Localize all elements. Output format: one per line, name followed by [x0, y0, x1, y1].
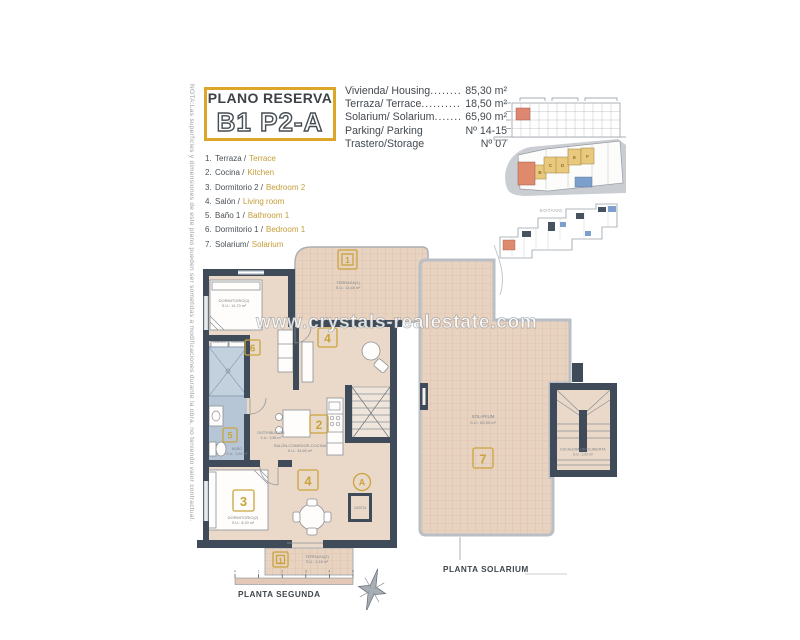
highlighted-unit-siteplan [518, 162, 535, 185]
info-row: Parking/ Parking Nº 14-15 [345, 125, 507, 138]
legend-es: Cocina / [215, 168, 244, 177]
living-area: S.U.: 34,60 m² [288, 449, 313, 453]
info-label: Trastero/Storage [345, 138, 424, 151]
info-label: Parking/ Parking [345, 125, 423, 138]
badge-kitchen: 2 [316, 418, 323, 432]
site-unit-letter: E [573, 155, 576, 160]
legend-item: 2.Cocina /Kitchen [205, 166, 305, 180]
legend-item: 1.Terraza /Terrace [205, 152, 305, 166]
terrace-bottom-area: S.U.: 4,16 m² [306, 560, 329, 564]
main-floorplans: 1 6 5 3 4 2 4 1 A TERRAZA [190, 238, 640, 610]
scale-tick: 1 [258, 570, 260, 574]
plan-solarium-label: PLANTA SOLARIUM [443, 565, 529, 574]
building-elevation-drawing [494, 98, 626, 140]
badge-bed1: 6 [250, 344, 256, 355]
legend-number: 1. [205, 152, 215, 166]
sotano-label: SOTANO [540, 208, 563, 214]
scale-tick: 0 [234, 570, 236, 574]
tv-unit [302, 342, 313, 382]
sofa [278, 330, 293, 372]
bath-name: BAÑO [232, 446, 243, 451]
kitchen-counter [327, 398, 343, 455]
highlighted-unit-elevation [516, 108, 530, 120]
legend-item: 6.Dormitorio 1 /Bedroom 1 [205, 223, 305, 237]
outdoor-stairwell: ESCALERA DESCUBIERTA S.U.: 1,02 m² [550, 383, 617, 477]
legend-es: Dormitorio 2 / [215, 183, 263, 192]
staircase [352, 387, 390, 439]
solarium-wall-block [572, 363, 583, 382]
legend-en: Living room [243, 197, 284, 206]
info-row: Vivienda/ Housing ......................… [345, 85, 507, 98]
areas-info-block: Vivienda/ Housing ......................… [345, 85, 507, 151]
section-marker-a: A [359, 478, 366, 488]
floorplan-sheet: NOTA:Las superficies y dimensiones de es… [0, 0, 800, 640]
info-row: Solarium/ Solarium .....................… [345, 111, 507, 124]
legend-number: 4. [205, 195, 215, 209]
bed2-area: S.U.: 8,20 m² [232, 521, 255, 525]
dot-leader: .............................. [430, 85, 461, 98]
scale-tick: 4 [328, 570, 330, 574]
stair-area: S.U.: 1,02 m² [573, 453, 594, 457]
plan-segunda-label: PLANTA SEGUNDA [238, 590, 321, 599]
bed1-area: S.U.: 14,70 m² [222, 304, 247, 308]
terrace-top-area: S.U.: 14,48 m² [336, 286, 361, 290]
legend-number: 3. [205, 181, 215, 195]
site-plan-mini: B C D E F [505, 139, 626, 196]
hall-name: DISTRIBUIDOR [257, 431, 284, 435]
site-unit-letter: F [586, 154, 589, 159]
solarium-room-name: SOLARIUM [472, 414, 495, 419]
legend-es: Salón / [215, 197, 240, 206]
scale-tick: 5 [352, 570, 354, 574]
solarium-access-door [420, 383, 428, 410]
stair-name: ESCALERA DESCUBIERTA [560, 448, 606, 452]
legend-es: Baño 1 / [215, 211, 245, 220]
legend-item: 4.Salón /Living room [205, 195, 305, 209]
info-row: Trastero/Storage Nº 07 [345, 138, 507, 151]
info-label: Vivienda/ Housing [345, 85, 430, 98]
info-row: Terraza/ Terrace .......................… [345, 98, 507, 111]
badge-bed2: 3 [240, 494, 247, 509]
legend-en: Bedroom 1 [266, 225, 305, 234]
watermark: www.crystals-realestate.com [256, 312, 538, 334]
info-label: Terraza/ Terrace [345, 98, 421, 111]
living-name: SALÓN-COMEDOR-COCINA [274, 443, 327, 448]
legend-en: Terrace [249, 154, 276, 163]
legend-en: Bathroom 1 [248, 211, 289, 220]
plan-title: PLANO RESERVA [208, 90, 332, 106]
legend-item: 3.Dormitorio 2 /Bedroom 2 [205, 181, 305, 195]
legend-es: Dormitorio 1 / [215, 225, 263, 234]
hall-area: S.U.: 3,58 m² [260, 436, 282, 440]
scale-tick: 2 [281, 570, 283, 574]
legend-item: 5.Baño 1 /Bathroom 1 [205, 209, 305, 223]
bed2-name: DORMITORIO(2) [228, 515, 259, 520]
info-label: Solarium/ Solarium [345, 111, 435, 124]
title-box: PLANO RESERVA B1 P2-A [204, 87, 336, 141]
legend-number: 2. [205, 166, 215, 180]
legend-number: 5. [205, 209, 215, 223]
closet-b-label: ARMARIO [231, 340, 245, 344]
plan-solarium: ESCALERA DESCUBIERTA S.U.: 1,02 m² SOLAR… [420, 260, 617, 574]
bed1-name: DORMITORIO(1) [219, 298, 250, 303]
solarium-room-area: S.U.: 65,90 m² [470, 420, 496, 425]
closet-a-label: ARMARIO [213, 340, 227, 344]
badge-terrace-top: 1 [345, 255, 350, 265]
badge-living-b: 4 [304, 474, 312, 489]
legend-number: 6. [205, 223, 215, 237]
bath-area: S.U.: 3,85 m² [226, 452, 248, 456]
badge-bath: 5 [227, 431, 232, 441]
caseta-label: CASETA [354, 506, 367, 510]
legend-es: Terraza / [215, 154, 246, 163]
badge-solarium: 7 [479, 452, 486, 467]
pool [575, 177, 592, 187]
compass-rose [353, 565, 391, 610]
dot-leader: .............................. [421, 98, 461, 111]
terrace-top-name: TERRAZA(1) [336, 280, 360, 285]
dot-leader: .............................. [435, 111, 462, 124]
scale-tick: 3 [305, 570, 307, 574]
unit-code: B1 P2-A [217, 107, 324, 138]
badge-terrace-bottom: 1 [278, 556, 282, 565]
terrace-top [295, 247, 428, 322]
plan-segunda: 1 6 5 3 4 2 4 1 A TERRAZA [197, 247, 428, 610]
terrace-bottom-name: TERRAZA(2) [305, 554, 329, 559]
legend-en: Kitchen [247, 168, 274, 177]
legend-en: Bedroom 2 [266, 183, 305, 192]
